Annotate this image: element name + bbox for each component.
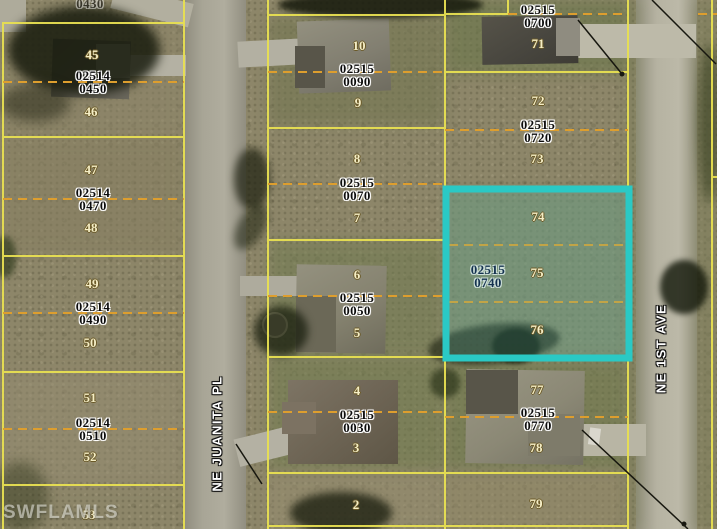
utility-pole — [682, 522, 687, 527]
parcel-label: 02515 0050 — [331, 291, 383, 317]
street-label-ne-1st-ave: NE 1ST AVE — [654, 299, 669, 399]
lot-number: 71 — [525, 37, 551, 50]
lot-number: 45 — [79, 48, 105, 61]
lot-number: 52 — [77, 450, 103, 463]
utility-pole — [620, 72, 625, 77]
parcel-label: 02515 0030 — [331, 408, 383, 434]
parcel-label: 02514 0450 — [67, 69, 119, 95]
aerial-parcel-map[interactable]: 0430 02514 0450 02514 0470 02514 0490 02… — [0, 0, 717, 529]
highlighted-parcel-label: 02515 0740 — [462, 263, 514, 289]
lot-number: 10 — [346, 39, 372, 52]
lot-number: 4 — [344, 384, 370, 397]
lot-number: 75 — [524, 266, 550, 279]
lot-number: 2 — [343, 498, 369, 511]
lot-number: 51 — [77, 391, 103, 404]
mls-watermark: SWFLAMLS — [3, 502, 119, 524]
lot-number: 6 — [344, 268, 370, 281]
lot-number: 76 — [524, 323, 550, 336]
parcel-label: 02514 0490 — [67, 300, 119, 326]
lot-number: 49 — [79, 277, 105, 290]
parcel-label: 02515 0770 — [512, 406, 564, 432]
parcel-label: 02514 0470 — [67, 186, 119, 212]
lot-number: 79 — [523, 497, 549, 510]
lot-number: 78 — [523, 441, 549, 454]
lot-number: 50 — [77, 336, 103, 349]
lot-number: 77 — [524, 383, 550, 396]
parcel-label: 02514 0510 — [67, 416, 119, 442]
parcel-label: 02515 0720 — [512, 118, 564, 144]
lot-number: 7 — [344, 211, 370, 224]
lot-number: 47 — [78, 163, 104, 176]
lot-number: 8 — [344, 152, 370, 165]
lot-number: 48 — [78, 221, 104, 234]
lot-number: 74 — [525, 210, 551, 223]
parcel-label: 02515 0070 — [331, 176, 383, 202]
partial-parcel-label: 0430 — [64, 0, 116, 10]
lot-number: 3 — [343, 441, 369, 454]
lot-number: 46 — [78, 105, 104, 118]
lot-number: 5 — [344, 326, 370, 339]
street-label-ne-juanita-pl: NE JUANITA PL — [210, 369, 225, 499]
lot-number: 72 — [525, 94, 551, 107]
parcel-label: 02515 0090 — [331, 62, 383, 88]
lot-number: 73 — [524, 152, 550, 165]
lot-number: 9 — [345, 96, 371, 109]
parcel-label: 02515 0700 — [512, 3, 564, 29]
